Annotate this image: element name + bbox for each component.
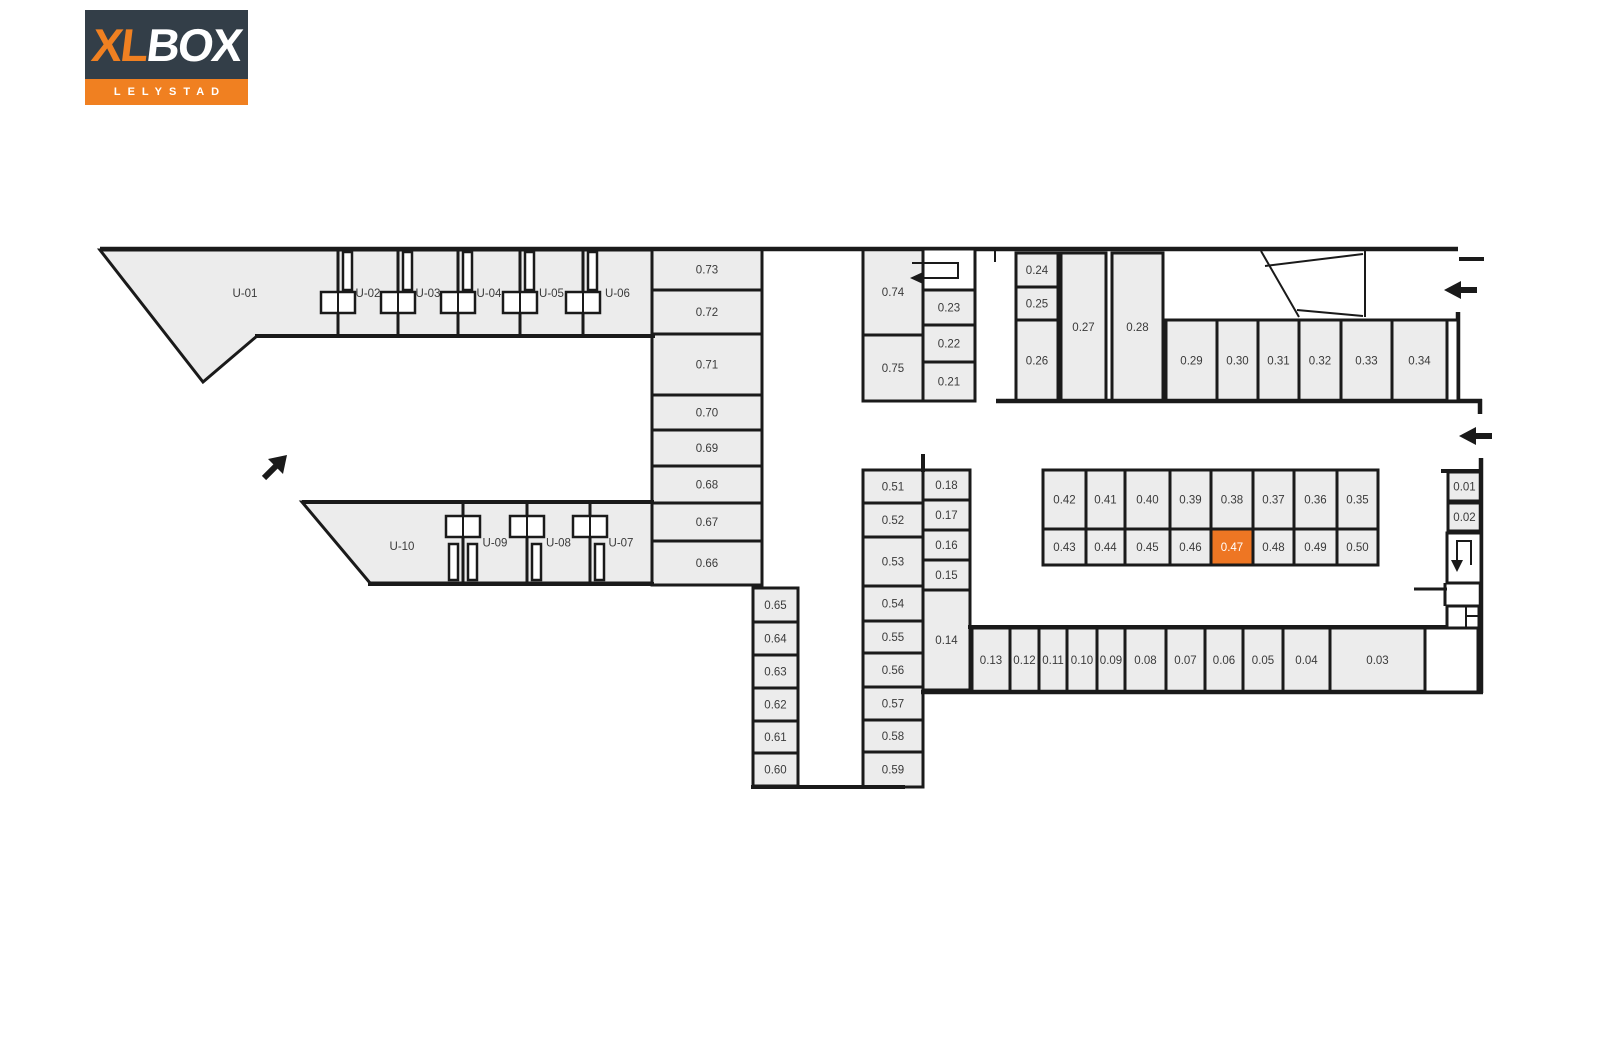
unit-label-0.23: 0.23 (938, 303, 960, 315)
unit-0.46[interactable]: 0.46 (1170, 529, 1211, 565)
unit-0.72[interactable]: 0.72 (652, 290, 762, 334)
ramp-line-upper (1265, 254, 1363, 266)
units-layer: U-01U-02U-03U-04U-05U-060.730.720.710.70… (100, 249, 1481, 787)
unit-label-0.04: 0.04 (1295, 655, 1318, 667)
unit-label-0.70: 0.70 (696, 408, 718, 420)
empty-unit-top-right (1447, 320, 1458, 401)
unit-0.25[interactable]: 0.25 (1016, 287, 1058, 320)
unit-0.08[interactable]: 0.08 (1125, 628, 1166, 692)
unit-0.24[interactable]: 0.24 (1016, 253, 1058, 287)
unit-label-0.13: 0.13 (980, 655, 1002, 667)
unit-0.03[interactable]: 0.03 (1330, 628, 1425, 692)
unit-0.54[interactable]: 0.54 (863, 586, 923, 621)
floorplan-canvas: XLBOX LELYSTAD U-01U-02U-03U-04U-05U-060… (0, 0, 1600, 1040)
unit-0.22[interactable]: 0.22 (923, 325, 975, 362)
unit-0.48[interactable]: 0.48 (1253, 529, 1294, 565)
unit-0.71[interactable]: 0.71 (652, 334, 762, 395)
unit-label-0.10: 0.10 (1071, 655, 1093, 667)
unit-label-0.02: 0.02 (1453, 512, 1475, 524)
entrance-arrow-mid-right (1459, 427, 1492, 445)
unit-0.36[interactable]: 0.36 (1294, 470, 1337, 529)
unit-0.37[interactable]: 0.37 (1253, 470, 1294, 529)
unit-label-U-09: U-09 (483, 538, 508, 550)
unit-label-0.47: 0.47 (1221, 542, 1243, 554)
ramp-line-lower (1297, 310, 1363, 316)
unit-label-0.08: 0.08 (1134, 655, 1156, 667)
floorplan-svg: U-01U-02U-03U-04U-05U-060.730.720.710.70… (0, 0, 1600, 1040)
unit-label-0.49: 0.49 (1304, 542, 1326, 554)
unit-label-0.33: 0.33 (1355, 356, 1377, 368)
unit-label-0.01: 0.01 (1453, 482, 1475, 494)
arrow-shaft (264, 465, 277, 478)
unit-label-0.63: 0.63 (764, 667, 786, 679)
unit-label-0.12: 0.12 (1013, 655, 1035, 667)
unit-U-01[interactable]: U-01 (100, 250, 338, 382)
unit-label-0.59: 0.59 (882, 765, 904, 777)
unit-label-0.14: 0.14 (935, 635, 958, 647)
unit-0.52[interactable]: 0.52 (863, 503, 923, 537)
unit-label-0.36: 0.36 (1304, 495, 1326, 507)
unit-0.38[interactable]: 0.38 (1211, 470, 1253, 529)
unit-0.50[interactable]: 0.50 (1337, 529, 1378, 565)
entrance-arrow-left (264, 455, 287, 478)
unit-label-0.29: 0.29 (1180, 356, 1202, 368)
unit-0.42[interactable]: 0.42 (1043, 470, 1086, 529)
unit-0.13[interactable]: 0.13 (972, 628, 1010, 692)
unit-label-0.34: 0.34 (1408, 356, 1431, 368)
unit-label-0.62: 0.62 (764, 700, 786, 712)
unit-label-0.64: 0.64 (764, 634, 787, 646)
lift-shaft (1447, 606, 1479, 628)
unit-0.29[interactable]: 0.29 (1166, 320, 1217, 401)
unit-0.67[interactable]: 0.67 (652, 503, 762, 541)
unit-label-0.39: 0.39 (1179, 495, 1201, 507)
unit-label-U-08: U-08 (546, 538, 571, 550)
ramp-diagonal (1261, 251, 1299, 317)
unit-0.69[interactable]: 0.69 (652, 430, 762, 466)
unit-0.30[interactable]: 0.30 (1217, 320, 1258, 401)
unit-label-0.41: 0.41 (1094, 495, 1116, 507)
unit-0.14[interactable]: 0.14 (923, 590, 970, 690)
unit-label-0.25: 0.25 (1026, 299, 1048, 311)
unit-U-10[interactable]: U-10 (302, 502, 463, 583)
arrow-head (1444, 281, 1461, 299)
unit-0.64[interactable]: 0.64 (753, 622, 798, 655)
unit-label-0.57: 0.57 (882, 699, 904, 711)
unit-label-0.51: 0.51 (882, 482, 904, 494)
unit-0.18[interactable]: 0.18 (923, 470, 970, 500)
unit-0.47[interactable]: 0.47 (1211, 529, 1253, 565)
unit-label-0.69: 0.69 (696, 443, 718, 455)
unit-label-0.54: 0.54 (882, 599, 905, 611)
unit-0.32[interactable]: 0.32 (1299, 320, 1341, 401)
unit-label-0.06: 0.06 (1213, 655, 1235, 667)
unit-0.12[interactable]: 0.12 (1010, 628, 1039, 692)
stairwell-room-top (923, 249, 975, 290)
unit-label-0.58: 0.58 (882, 731, 904, 743)
ramp-icon (1261, 251, 1365, 317)
unit-label-U-01: U-01 (233, 288, 258, 300)
unit-label-0.37: 0.37 (1262, 495, 1284, 507)
unit-0.66[interactable]: 0.66 (652, 541, 762, 585)
unit-0.35[interactable]: 0.35 (1337, 470, 1378, 529)
unit-label-0.71: 0.71 (696, 360, 718, 372)
unit-0.73[interactable]: 0.73 (652, 249, 762, 290)
unit-0.59[interactable]: 0.59 (863, 752, 923, 787)
unit-label-0.31: 0.31 (1267, 356, 1289, 368)
unit-label-0.28: 0.28 (1126, 322, 1148, 334)
unit-0.23[interactable]: 0.23 (923, 290, 975, 325)
unit-0.43[interactable]: 0.43 (1043, 529, 1086, 565)
unit-0.09[interactable]: 0.09 (1097, 628, 1125, 692)
unit-0.28[interactable]: 0.28 (1112, 253, 1163, 401)
unit-label-0.11: 0.11 (1042, 655, 1064, 667)
unit-0.11[interactable]: 0.11 (1039, 628, 1067, 692)
unit-label-0.68: 0.68 (696, 480, 718, 492)
unit-0.41[interactable]: 0.41 (1086, 470, 1125, 529)
unit-0.49[interactable]: 0.49 (1294, 529, 1337, 565)
unit-label-0.75: 0.75 (882, 363, 904, 375)
unit-label-0.45: 0.45 (1136, 542, 1158, 554)
unit-label-U-06: U-06 (605, 288, 630, 300)
unit-label-U-07: U-07 (609, 538, 634, 550)
unit-0.65[interactable]: 0.65 (753, 588, 798, 622)
unit-0.51[interactable]: 0.51 (863, 470, 923, 503)
unit-label-0.27: 0.27 (1072, 322, 1094, 334)
unit-label-0.65: 0.65 (764, 600, 786, 612)
unit-0.05[interactable]: 0.05 (1243, 628, 1283, 692)
unit-label-0.60: 0.60 (764, 765, 786, 777)
unit-label-0.46: 0.46 (1179, 542, 1201, 554)
unit-0.04[interactable]: 0.04 (1283, 628, 1330, 692)
unit-label-0.38: 0.38 (1221, 495, 1243, 507)
unit-0.02[interactable]: 0.02 (1448, 503, 1481, 531)
unit-label-0.72: 0.72 (696, 307, 718, 319)
unit-0.61[interactable]: 0.61 (753, 721, 798, 753)
unit-0.44[interactable]: 0.44 (1086, 529, 1125, 565)
unit-0.17[interactable]: 0.17 (923, 500, 970, 530)
unit-label-0.17: 0.17 (935, 510, 957, 522)
unit-label-0.40: 0.40 (1136, 495, 1158, 507)
unit-label-0.53: 0.53 (882, 557, 904, 569)
unit-label-0.61: 0.61 (764, 732, 786, 744)
arrow-head (1459, 427, 1476, 445)
unit-0.63[interactable]: 0.63 (753, 655, 798, 688)
unit-label-0.48: 0.48 (1262, 542, 1284, 554)
unit-0.21[interactable]: 0.21 (923, 362, 975, 401)
unit-0.45[interactable]: 0.45 (1125, 529, 1170, 565)
unit-0.10[interactable]: 0.10 (1067, 628, 1097, 692)
unit-label-0.32: 0.32 (1309, 356, 1331, 368)
unit-0.53[interactable]: 0.53 (863, 537, 923, 586)
unit-0.70[interactable]: 0.70 (652, 395, 762, 430)
unit-0.15[interactable]: 0.15 (923, 560, 970, 590)
unit-label-0.50: 0.50 (1346, 542, 1368, 554)
unit-0.34[interactable]: 0.34 (1392, 320, 1447, 401)
unit-label-U-05: U-05 (539, 288, 564, 300)
unit-0.74[interactable]: 0.74 (863, 249, 923, 335)
unit-label-0.44: 0.44 (1094, 542, 1117, 554)
unit-0.07[interactable]: 0.07 (1166, 628, 1205, 692)
unit-label-U-03: U-03 (416, 288, 441, 300)
unit-0.58[interactable]: 0.58 (863, 720, 923, 752)
empty-unit-bottom-right (1425, 628, 1478, 692)
unit-label-U-02: U-02 (356, 288, 381, 300)
unit-0.16[interactable]: 0.16 (923, 530, 970, 560)
unit-0.31[interactable]: 0.31 (1258, 320, 1299, 401)
unit-label-0.66: 0.66 (696, 558, 718, 570)
unit-0.62[interactable]: 0.62 (753, 688, 798, 721)
unit-0.56[interactable]: 0.56 (863, 653, 923, 687)
unit-0.33[interactable]: 0.33 (1341, 320, 1392, 401)
unit-label-0.05: 0.05 (1252, 655, 1274, 667)
unit-label-0.56: 0.56 (882, 665, 904, 677)
unit-0.26[interactable]: 0.26 (1016, 320, 1058, 401)
unit-label-0.16: 0.16 (935, 540, 957, 552)
unit-label-0.18: 0.18 (935, 480, 957, 492)
unit-0.60[interactable]: 0.60 (753, 753, 798, 786)
unit-0.55[interactable]: 0.55 (863, 621, 923, 653)
unit-label-0.03: 0.03 (1366, 655, 1388, 667)
unit-label-0.55: 0.55 (882, 632, 904, 644)
unit-label-0.07: 0.07 (1174, 655, 1196, 667)
unit-label-0.43: 0.43 (1053, 542, 1075, 554)
unit-label-0.74: 0.74 (882, 287, 905, 299)
unit-0.40[interactable]: 0.40 (1125, 470, 1170, 529)
unit-label-0.22: 0.22 (938, 339, 960, 351)
unit-label-U-10: U-10 (390, 541, 415, 553)
unit-0.75[interactable]: 0.75 (863, 335, 923, 401)
unit-0.01[interactable]: 0.01 (1448, 472, 1481, 501)
unit-label-0.09: 0.09 (1100, 655, 1122, 667)
unit-0.27[interactable]: 0.27 (1061, 253, 1106, 401)
unit-label-0.42: 0.42 (1053, 495, 1075, 507)
unit-label-0.30: 0.30 (1226, 356, 1248, 368)
unit-0.06[interactable]: 0.06 (1205, 628, 1243, 692)
unit-0.57[interactable]: 0.57 (863, 687, 923, 720)
unit-0.68[interactable]: 0.68 (652, 466, 762, 503)
entrance-arrow-top-right (1444, 281, 1477, 299)
unit-label-0.21: 0.21 (938, 377, 960, 389)
unit-label-0.52: 0.52 (882, 515, 904, 527)
unit-label-0.26: 0.26 (1026, 356, 1048, 368)
unit-label-0.67: 0.67 (696, 517, 718, 529)
unit-label-0.24: 0.24 (1026, 265, 1049, 277)
unit-0.39[interactable]: 0.39 (1170, 470, 1211, 529)
unit-label-0.15: 0.15 (935, 570, 957, 582)
unit-label-0.73: 0.73 (696, 265, 718, 277)
unit-label-0.35: 0.35 (1346, 495, 1368, 507)
unit-label-U-04: U-04 (477, 288, 503, 300)
